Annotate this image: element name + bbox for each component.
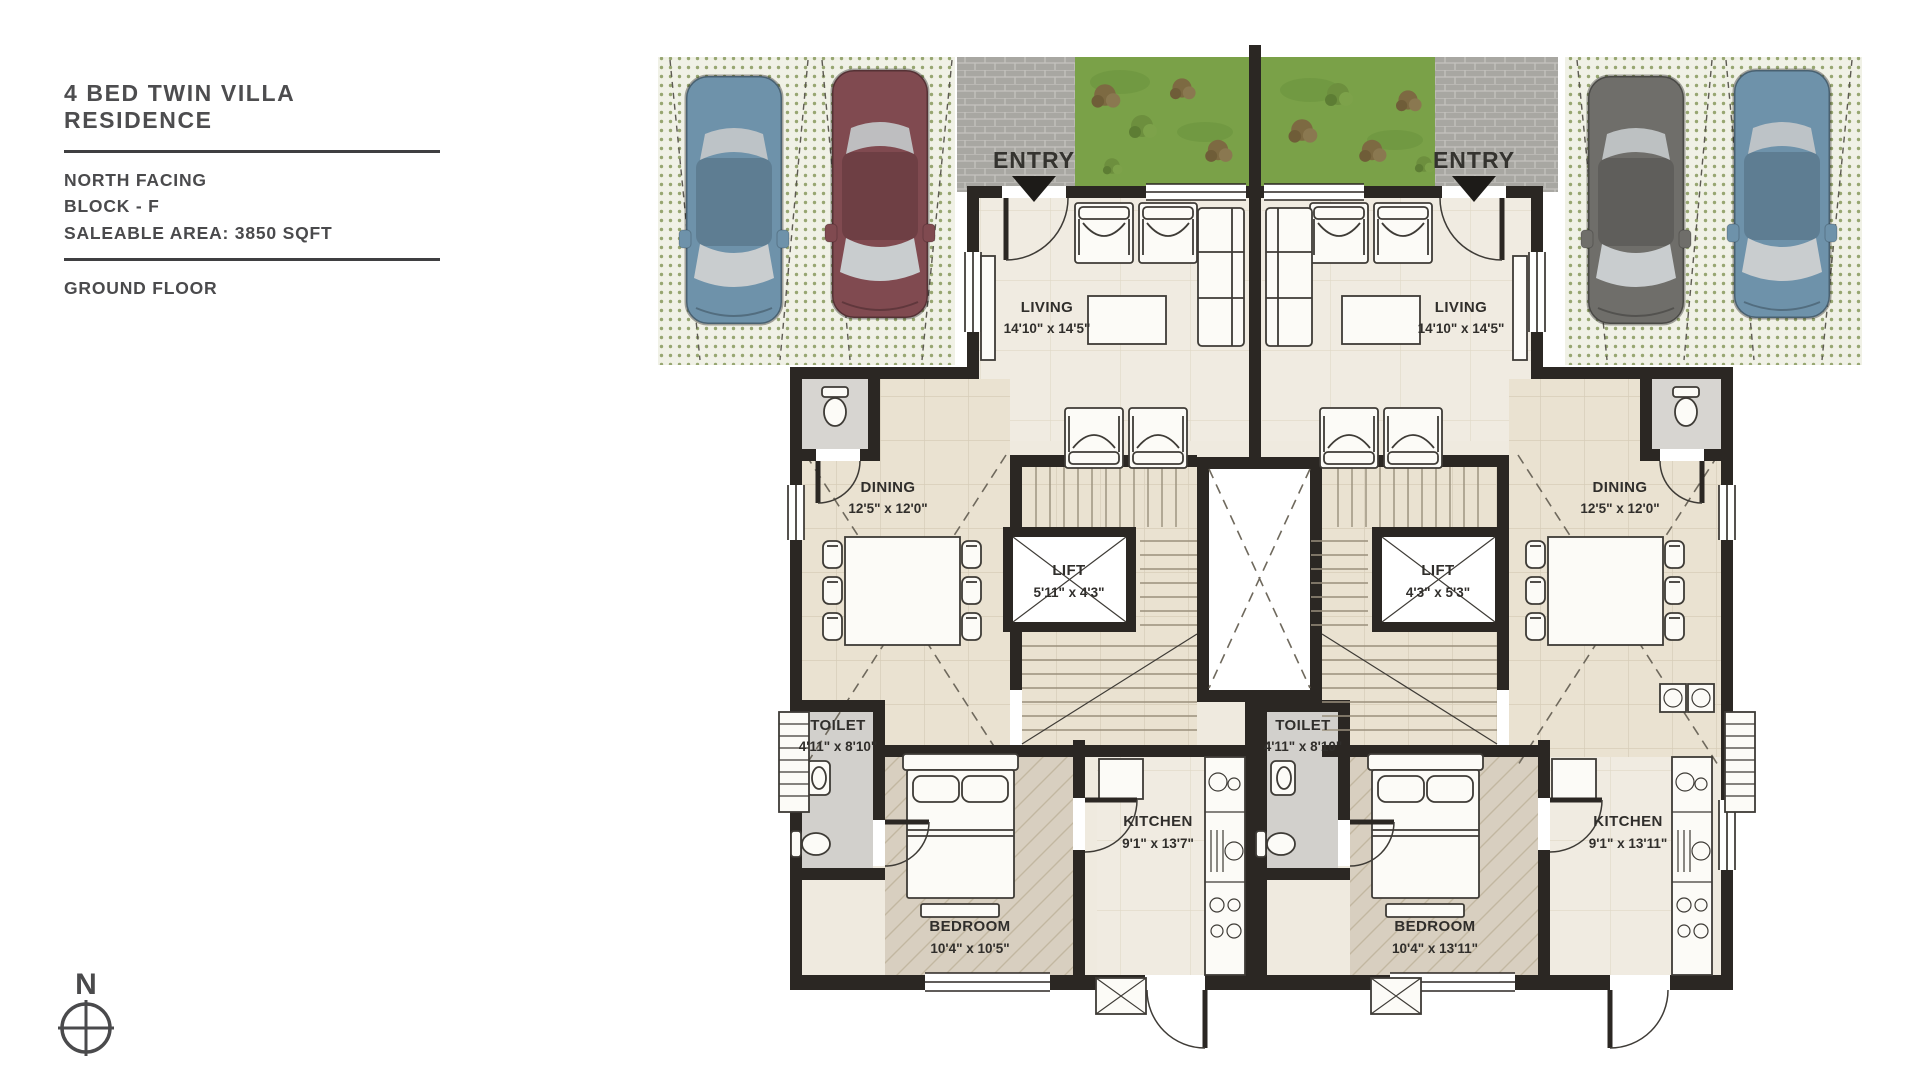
bed-icon	[903, 754, 1018, 917]
armchair-icon	[1129, 408, 1187, 468]
dining-table-icon	[845, 537, 960, 645]
armchair-icon	[1065, 408, 1123, 468]
room-label-dining: DINING	[861, 479, 916, 496]
room-dims-bedroom: 10'4" x 10'5"	[930, 941, 1009, 956]
compass-cross-icon	[58, 1000, 114, 1056]
room-label-bedroom: BEDROOM	[929, 918, 1010, 935]
room-label-kitchen: KITCHEN	[1123, 813, 1192, 830]
room-dims-toilet: 4'11" x 8'10"	[1264, 739, 1343, 754]
sofa-icon	[1198, 208, 1244, 346]
tv-console-icon	[1513, 256, 1527, 360]
dining-set-left	[823, 537, 981, 645]
room-label-living: LIVING	[1021, 299, 1073, 316]
toilet-wc-icon	[1673, 387, 1699, 426]
window-living-right	[1529, 252, 1545, 332]
washbasin-icon	[1271, 761, 1295, 795]
armchair-icon	[1139, 203, 1197, 263]
lawn-left	[1075, 57, 1249, 192]
central-void	[1209, 469, 1310, 690]
car-blue-right-icon	[1727, 70, 1837, 318]
armchair-icon	[1384, 408, 1442, 468]
room-dims-living: 14'10" x 14'5"	[1418, 321, 1505, 336]
window-living-left	[965, 252, 981, 332]
room-label-bedroom: BEDROOM	[1394, 918, 1475, 935]
floor-plan: ENTRY ENTRY LIVING 14'10" x 14'5" DINING…	[0, 0, 1920, 1080]
entry-label: ENTRY	[993, 147, 1075, 173]
room-dims-dining: 12'5" x 12'0"	[1580, 501, 1659, 516]
room-dims-kitchen: 9'1" x 13'11"	[1589, 836, 1668, 851]
toilet-wc-icon	[1256, 831, 1295, 857]
room-label-kitchen: KITCHEN	[1593, 813, 1662, 830]
room-label-toilet: TOILET	[1275, 717, 1330, 734]
room-dims-lift: 4'3" x 5'3"	[1406, 585, 1470, 600]
toilet-wc-icon	[822, 387, 848, 426]
window-dining-left	[788, 485, 804, 540]
lawn-right	[1261, 57, 1435, 192]
lift-right	[1382, 537, 1495, 622]
coffee-table-icon	[1088, 296, 1166, 344]
fridge-icon	[1099, 759, 1143, 799]
duct-right	[1725, 712, 1755, 812]
room-dims-toilet: 4'11" x 8'10"	[799, 739, 878, 754]
room-dims-kitchen: 9'1" x 13'7"	[1122, 836, 1194, 851]
tv-console-icon	[981, 256, 995, 360]
window-top-right	[1264, 184, 1364, 200]
armchair-icon	[1374, 203, 1432, 263]
room-dims-lift: 5'11" x 4'3"	[1033, 585, 1104, 600]
window-top-left	[1146, 184, 1246, 200]
armchair-icon	[1320, 408, 1378, 468]
fridge-icon	[1552, 759, 1596, 799]
window-bedroom-left	[925, 973, 1050, 992]
car-grey-icon	[1581, 76, 1691, 324]
bed-icon	[1368, 754, 1483, 917]
room-label-living: LIVING	[1435, 299, 1487, 316]
lift-left	[1013, 537, 1126, 622]
step-box-left	[1096, 978, 1146, 1014]
room-dims-dining: 12'5" x 12'0"	[848, 501, 927, 516]
car-maroon-icon	[825, 70, 935, 318]
room-label-lift: LIFT	[1421, 562, 1454, 579]
room-label-dining: DINING	[1593, 479, 1648, 496]
compass-north-label: N	[75, 968, 97, 1001]
room-dims-bedroom: 10'4" x 13'11"	[1392, 941, 1478, 956]
room-label-lift: LIFT	[1052, 562, 1085, 579]
entry-label: ENTRY	[1433, 147, 1515, 173]
sofa-icon	[1266, 208, 1312, 346]
coffee-table-icon	[1342, 296, 1420, 344]
armchair-icon	[1075, 203, 1133, 263]
room-dims-living: 14'10" x 14'5"	[1004, 321, 1091, 336]
floor-plan-page: 4 BED TWIN VILLA RESIDENCE NORTH FACING …	[0, 0, 1920, 1080]
toilet-wc-icon	[791, 831, 830, 857]
window-dining-right	[1719, 485, 1735, 540]
duct-left	[779, 712, 809, 812]
step-box-right	[1371, 978, 1421, 1014]
car-blue-left-icon	[679, 76, 789, 324]
dining-table-icon	[1548, 537, 1663, 645]
compass: N	[58, 968, 114, 1056]
room-label-toilet: TOILET	[810, 717, 865, 734]
armchair-icon	[1310, 203, 1368, 263]
dining-set-right	[1526, 537, 1684, 645]
